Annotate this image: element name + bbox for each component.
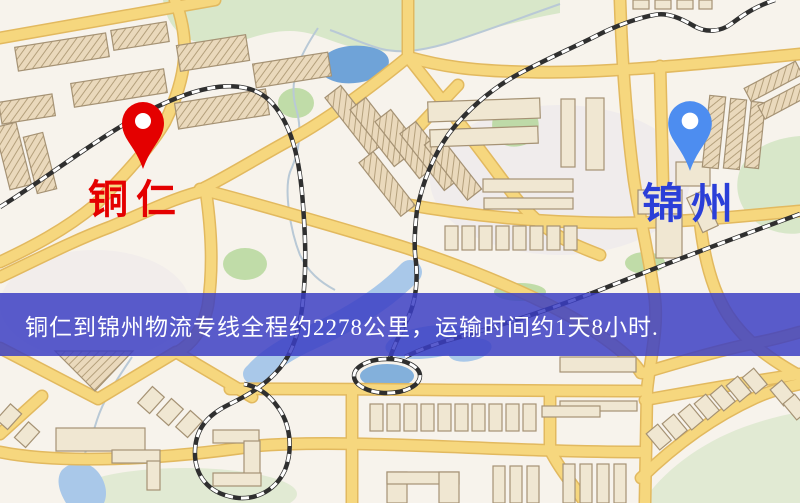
destination-city-label: 锦州 [642,184,740,226]
map-canvas[interactable] [0,0,800,503]
route-info-banner: 铜仁到锦州物流专线全程约2278公里，运输时间约1天8小时. [0,293,800,356]
origin-city-label: 铜仁 [88,180,184,220]
route-info-text: 铜仁到锦州物流专线全程约2278公里，运输时间约1天8小时. [25,308,659,342]
map-screenshot: 铜仁 锦州 铜仁到锦州物流专线全程约2278公里，运输时间约1天8小时. [0,0,800,503]
